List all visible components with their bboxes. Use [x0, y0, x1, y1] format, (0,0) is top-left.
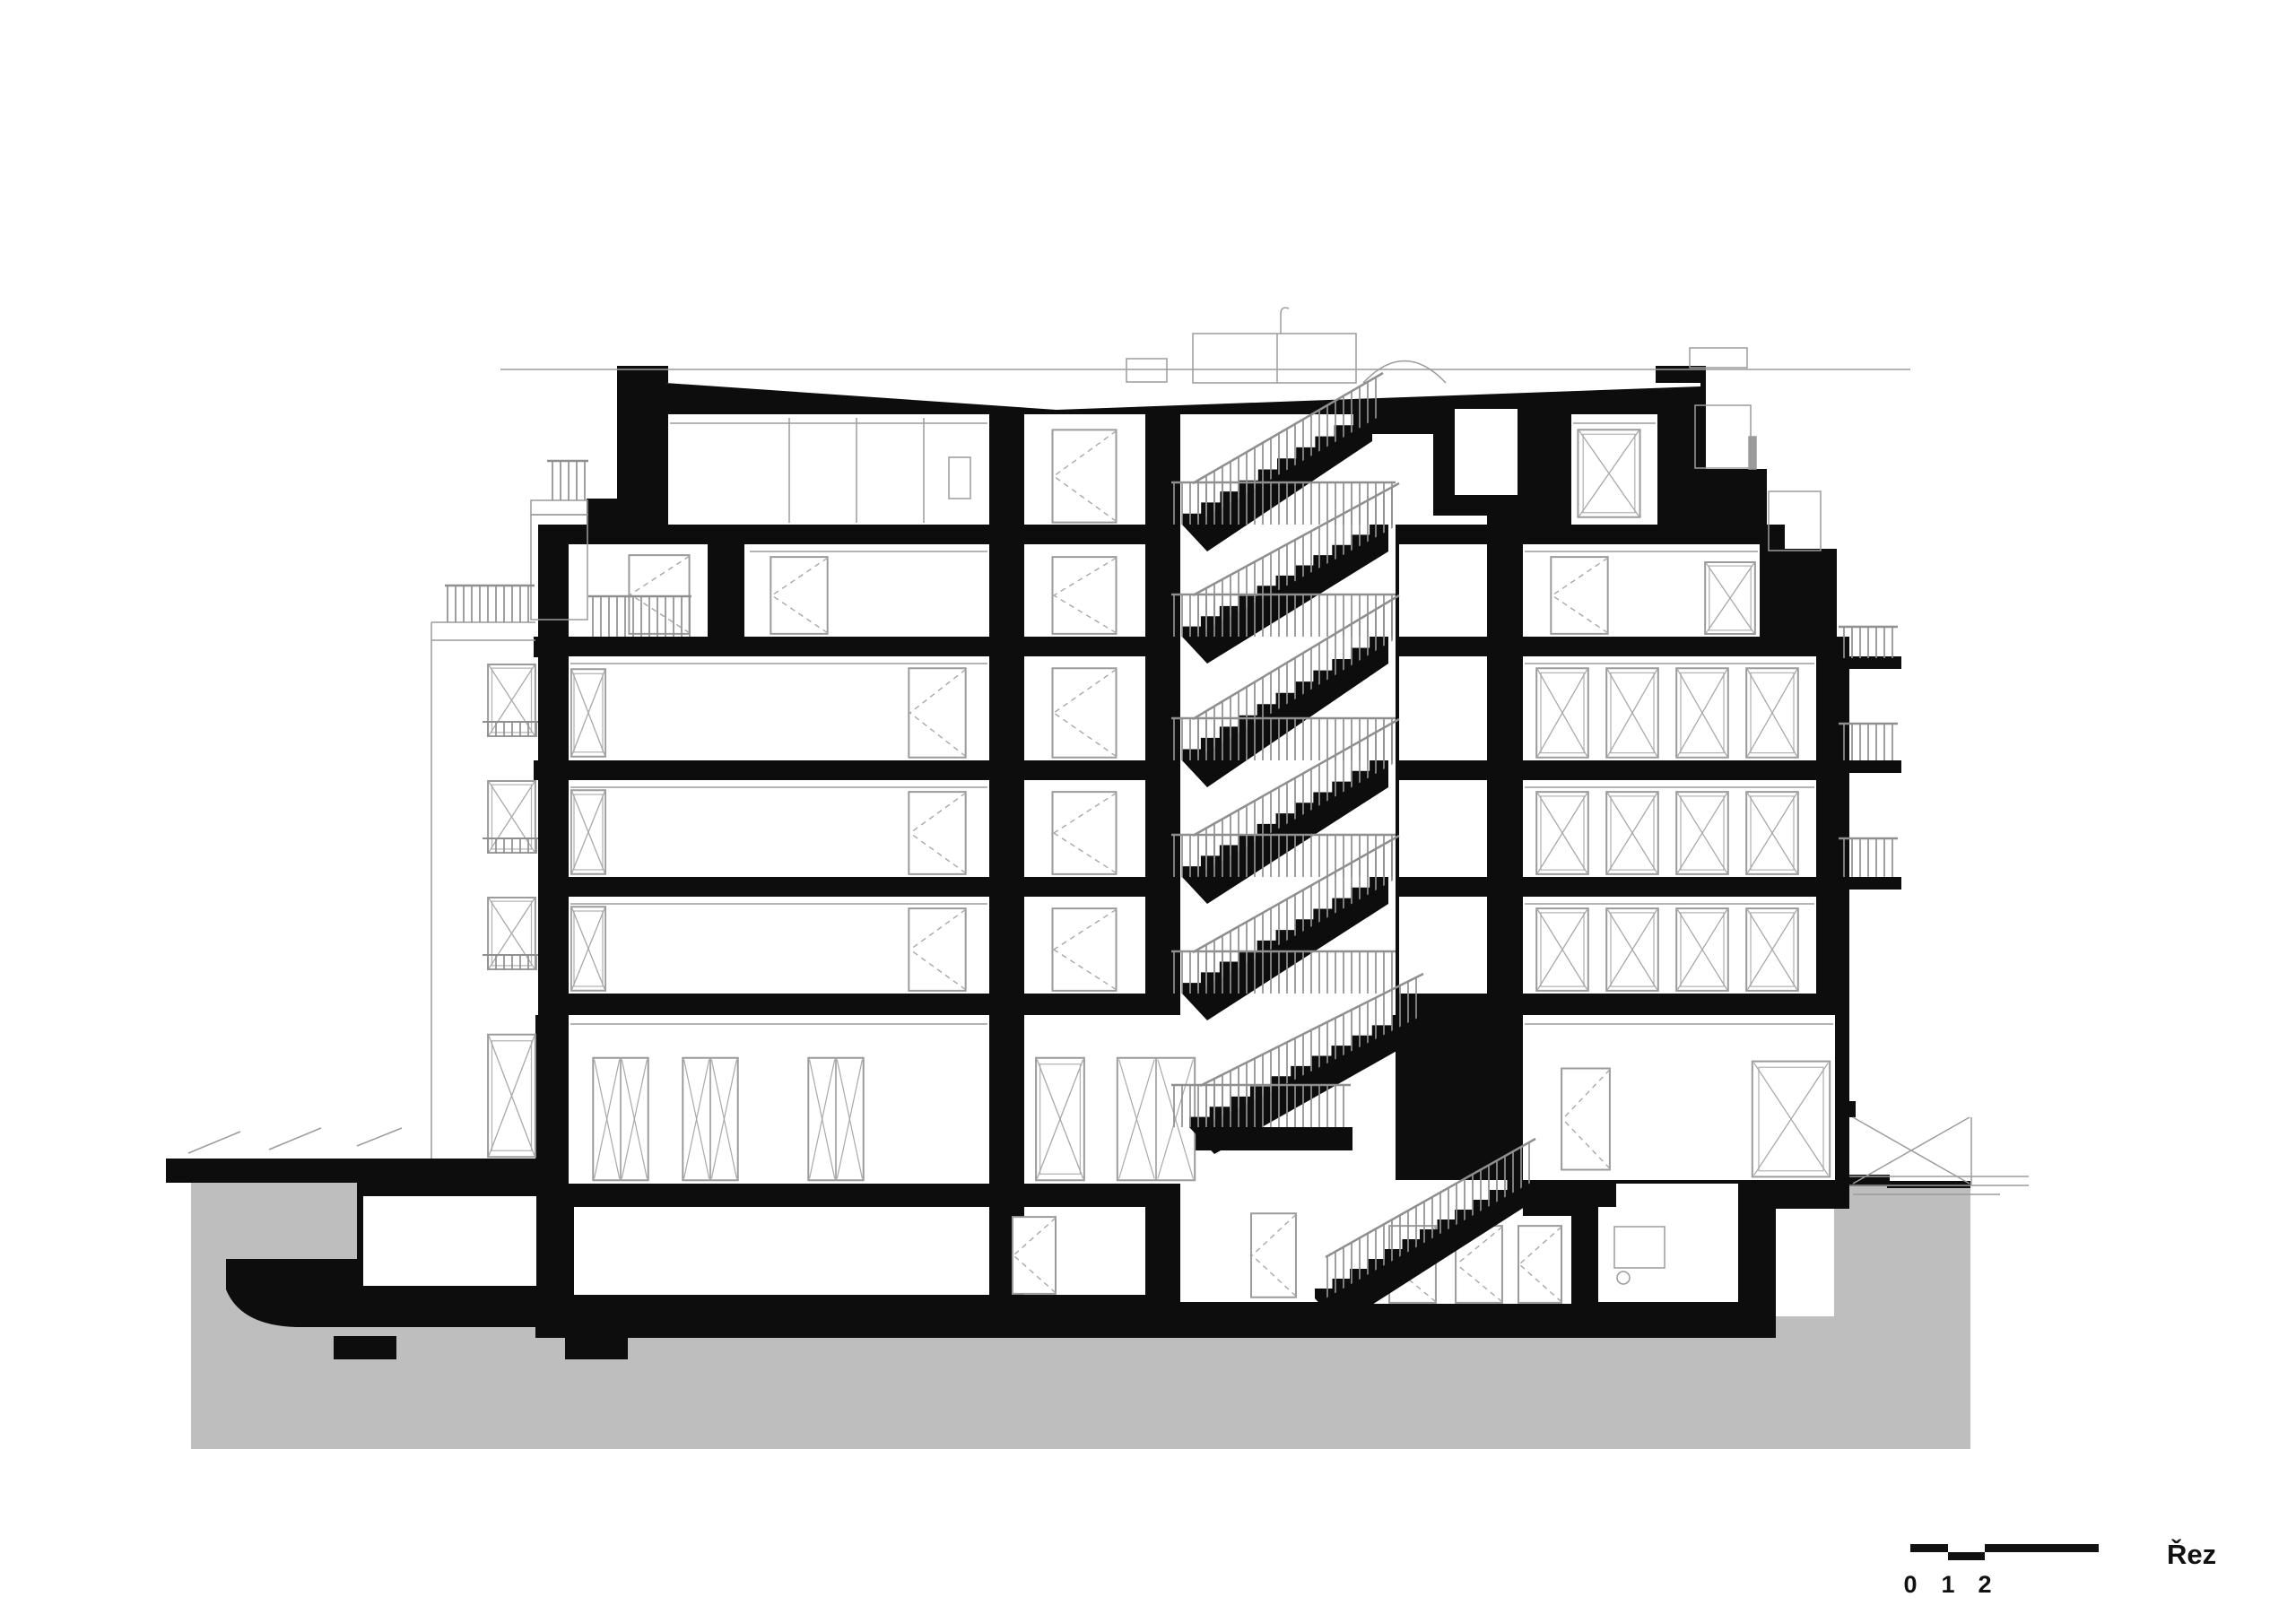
window-symbol [1536, 668, 1588, 757]
elevator-overrun-inside [1455, 409, 1518, 495]
room [1399, 544, 1487, 637]
window-symbol [1746, 792, 1798, 874]
window-symbol [571, 907, 605, 991]
drawing-sheet: 0 1 2 Řez [0, 0, 2296, 1623]
french-window [683, 1058, 737, 1181]
french-window [593, 1058, 648, 1181]
footing-2 [565, 1336, 628, 1359]
railing [483, 838, 538, 854]
door-symbol [1052, 668, 1116, 757]
window-symbol [1676, 792, 1728, 874]
landing-guardrail [1171, 834, 1396, 877]
room-basement-right2 [1598, 1184, 1738, 1302]
railing [1839, 838, 1898, 877]
railing [1839, 723, 1898, 760]
scale-label-0: 0 [1903, 1571, 1917, 1598]
roof-box-1 [1126, 359, 1167, 382]
window-symbol [1676, 908, 1728, 991]
roof-flue [1281, 308, 1289, 334]
window-symbol [1036, 1058, 1084, 1181]
entry-landing [1525, 1180, 1616, 1207]
building-section-drawing: 0 1 2 Řez [0, 0, 2296, 1623]
window-symbol [1746, 908, 1798, 991]
window-symbol [1578, 430, 1639, 517]
roof-box-2 [1690, 348, 1747, 368]
railing [445, 585, 535, 622]
door-symbol [909, 908, 965, 991]
cellar-west [363, 1196, 536, 1286]
railing [588, 595, 691, 637]
window-symbol [1676, 668, 1728, 757]
scale-segment-2-5 [1985, 1544, 2099, 1552]
landing-guardrail [1171, 1084, 1351, 1127]
scale-label-1: 1 [1941, 1571, 1954, 1598]
neighbor-penthouse-cap [531, 500, 587, 515]
scale-segment-1-2 [1948, 1552, 1985, 1560]
room [1399, 780, 1487, 877]
balcony-nub-left-2 [534, 760, 585, 780]
terrain-tick [357, 1128, 402, 1146]
balcony-slab-right-3 [1849, 877, 1901, 890]
terrain-tick [269, 1128, 321, 1150]
window-symbol [1746, 668, 1798, 757]
door-symbol [1518, 1226, 1561, 1303]
door-symbol [1551, 557, 1607, 634]
footing-1 [334, 1336, 396, 1359]
room [1399, 656, 1487, 760]
railing [547, 460, 588, 500]
window-symbol [571, 790, 605, 874]
door-symbol [1052, 430, 1116, 522]
scale-label-2: 2 [1978, 1571, 1991, 1598]
entry-door [1752, 1062, 1830, 1177]
scale-bar: 0 1 2 [1903, 1544, 2099, 1598]
terrain-tick [188, 1132, 240, 1153]
landing-guardrail [1171, 950, 1396, 994]
balcony-nub-left-1 [534, 637, 585, 657]
roof-bulkhead [1193, 334, 1356, 383]
landing-guardrail [1171, 594, 1396, 637]
scale-segment-0-1 [1910, 1544, 1948, 1552]
window-symbol [1536, 908, 1588, 991]
room [668, 414, 989, 525]
door-symbol [1052, 557, 1116, 634]
door-symbol [1013, 1217, 1056, 1294]
room-basement-left [574, 1207, 989, 1295]
terrain-band-right2 [1887, 1181, 1970, 1188]
door-symbol [909, 668, 965, 757]
window-symbol [1536, 792, 1588, 874]
balustrade-post [1749, 437, 1756, 469]
landing-guardrail [1171, 482, 1396, 525]
door-symbol [1561, 1068, 1610, 1169]
landing-guardrail [1171, 717, 1396, 760]
railing [1839, 626, 1898, 658]
drawing-title: Řez [2167, 1538, 2216, 1570]
neighbor-window [488, 1035, 535, 1158]
window-symbol [1606, 668, 1658, 757]
door-symbol [909, 792, 965, 874]
window-symbol [1606, 792, 1658, 874]
cellar-ceiling [357, 1182, 538, 1196]
door-symbol [1052, 792, 1116, 874]
railing [483, 954, 538, 970]
french-window [808, 1058, 863, 1181]
window-symbol [1705, 562, 1755, 634]
door-symbol [770, 557, 827, 634]
balcony-slab-right-2 [1849, 760, 1901, 773]
railing [483, 721, 538, 737]
ground-right [1834, 1185, 1970, 1449]
balcony-slab-right-1 [1849, 656, 1901, 669]
door-symbol [1251, 1213, 1296, 1298]
door-symbol [1052, 908, 1116, 991]
terrain-band-left [166, 1159, 538, 1183]
window-symbol [1606, 908, 1658, 991]
window-symbol [571, 669, 605, 757]
